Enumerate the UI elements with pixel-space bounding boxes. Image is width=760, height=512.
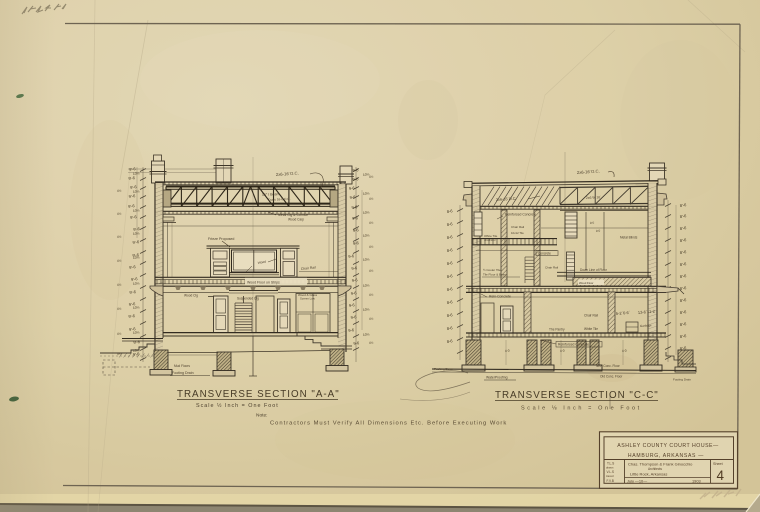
svg-text:10½: 10½	[133, 330, 140, 335]
svg-text:4: 4	[717, 468, 725, 483]
svg-text:4½: 4½	[117, 189, 122, 193]
svg-text:Scale ⅛ Inch = One Foot: Scale ⅛ Inch = One Foot	[521, 406, 642, 412]
svg-text:T.L.S: T.L.S	[607, 462, 614, 466]
svg-text:Note:: Note:	[256, 413, 267, 419]
svg-text:10½: 10½	[363, 332, 370, 337]
svg-text:TRANSVERSE SECTION "A-A": TRANSVERSE SECTION "A-A"	[177, 389, 340, 400]
svg-text:Architects: Architects	[648, 467, 662, 471]
svg-text:4½: 4½	[117, 352, 122, 356]
svg-text:4½: 4½	[117, 259, 122, 263]
svg-text:½ Cooler Tile: ½ Cooler Tile	[483, 268, 501, 272]
svg-text:ASHLEY COUNTY COURT HOUSE—: ASHLEY COUNTY COURT HOUSE—	[617, 443, 719, 449]
svg-text:4½: 4½	[369, 269, 374, 273]
svg-text:9-0: 9-0	[596, 229, 601, 233]
svg-text:The Pantry: The Pantry	[549, 328, 565, 332]
svg-text:Chair Rail: Chair Rail	[511, 225, 525, 229]
svg-text:10½: 10½	[133, 305, 140, 310]
svg-text:10½: 10½	[363, 210, 370, 215]
svg-text:White Tile: White Tile	[584, 327, 598, 331]
svg-text:Chas. Thompson & Frank Ginocch: Chas. Thompson & Frank Ginocchio	[628, 462, 693, 467]
svg-text:F.V.B: F.V.B	[607, 479, 614, 483]
svg-text:Tile Floor & Base: Tile Floor & Base	[483, 273, 506, 277]
svg-text:4½: 4½	[369, 221, 374, 225]
svg-text:10½: 10½	[363, 283, 370, 288]
svg-text:Chair Rail: Chair Rail	[545, 266, 559, 270]
svg-text:V.L.S: V.L.S	[607, 470, 615, 474]
svg-text:10½: 10½	[363, 257, 370, 262]
svg-text:Sheet: Sheet	[713, 462, 723, 466]
svg-text:4-0: 4-0	[560, 349, 565, 353]
svg-text:10½: 10½	[363, 307, 370, 312]
svg-text:10½: 10½	[363, 233, 370, 238]
svg-text:4½: 4½	[369, 197, 374, 201]
svg-text:10½: 10½	[133, 281, 140, 286]
svg-text:TRANSVERSE SECTION "C-C": TRANSVERSE SECTION "C-C"	[495, 390, 659, 401]
svg-text:4½: 4½	[117, 307, 122, 311]
svg-text:Reinforced Concrete: Reinforced Concrete	[558, 343, 589, 347]
svg-text:HAMBURG, ARKANSAS —: HAMBURG, ARKANSAS —	[628, 453, 704, 459]
svg-text:10½: 10½	[133, 231, 140, 236]
svg-text:10½: 10½	[363, 191, 370, 196]
svg-text:Scale ½ Inch = One Foot: Scale ½ Inch = One Foot	[196, 402, 279, 409]
svg-text:4½: 4½	[369, 317, 374, 321]
svg-text:Metal Clg & Cornice: Metal Clg & Cornice	[278, 213, 308, 217]
svg-text:4½: 4½	[369, 245, 374, 249]
svg-text:4½: 4½	[369, 293, 374, 297]
svg-text:Chair Rail: Chair Rail	[584, 314, 598, 318]
svg-text:Metal Blinds: Metal Blinds	[620, 236, 638, 240]
svg-text:4½: 4½	[117, 235, 122, 239]
svg-text:4½: 4½	[369, 341, 374, 345]
svg-text:Garbage: Garbage	[640, 323, 652, 328]
svg-text:WaterProofing: WaterProofing	[486, 376, 508, 380]
svg-text:Contractors Must Verify All Di: Contractors Must Verify All Dimensions E…	[270, 421, 507, 427]
svg-text:4½: 4½	[117, 283, 122, 287]
svg-text:Mud Floors: Mud Floors	[174, 364, 190, 368]
svg-text:2x6 W 16´: 2x6 W 16´	[586, 195, 602, 200]
svg-text:10½: 10½	[133, 171, 140, 176]
svg-text:Frieze Proposed: Frieze Proposed	[208, 237, 234, 241]
svg-text:Reinforced Concrete: Reinforced Concrete	[505, 213, 536, 217]
svg-text:Little Rock, Arkansas: Little Rock, Arkansas	[630, 472, 667, 477]
svg-text:Wood Clg: Wood Clg	[184, 294, 198, 298]
svg-text:10½: 10½	[133, 208, 140, 213]
svg-text:drawn: drawn	[606, 466, 614, 470]
svg-text:Down Line of Floor: Down Line of Floor	[580, 268, 608, 272]
svg-text:10½: 10½	[363, 172, 370, 177]
svg-text:4-0: 4-0	[505, 349, 510, 353]
svg-text:9-6: 9-6	[590, 221, 595, 225]
svg-text:Footing Drain: Footing Drain	[172, 371, 194, 375]
svg-text:10½: 10½	[133, 189, 140, 194]
svg-text:Wood Floor: Wood Floor	[579, 281, 593, 285]
svg-text:Old Conc. Floor: Old Conc. Floor	[600, 375, 623, 379]
svg-text:Screen Low: Screen Low	[300, 297, 316, 301]
svg-text:Concrete: Concrete	[538, 252, 551, 256]
svg-text:Footing Drain: Footing Drain	[673, 378, 691, 382]
svg-text:4½: 4½	[117, 332, 122, 336]
svg-text:4½: 4½	[117, 212, 122, 216]
svg-text:10½: 10½	[133, 255, 140, 260]
svg-text:New Conc. Floor: New Conc. Floor	[596, 364, 621, 368]
svg-text:Wood Carp: Wood Carp	[288, 218, 304, 222]
svg-text:Wood Floor on Strips: Wood Floor on Strips	[247, 281, 280, 285]
svg-text:1903: 1903	[692, 478, 701, 483]
svg-text:10x12 Tile: 10x12 Tile	[511, 231, 524, 235]
svg-text:traced: traced	[606, 474, 614, 478]
svg-text:July —10—: July —10—	[627, 478, 647, 483]
svg-text:Rein-Concrete: Rein-Concrete	[489, 295, 511, 299]
svg-text:4-0: 4-0	[622, 349, 627, 353]
